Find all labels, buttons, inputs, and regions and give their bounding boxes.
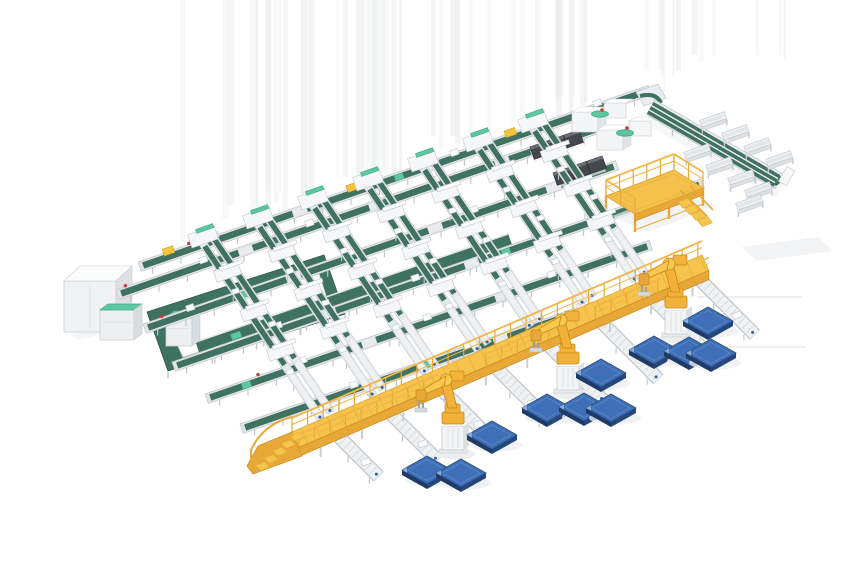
- discharge-lane-1: [335, 433, 383, 484]
- factory-3d-render: [0, 0, 860, 580]
- maintenance-platform: [606, 154, 716, 232]
- walkway-end-floor-shadow: [742, 237, 833, 261]
- pallet-2: [436, 459, 491, 492]
- control-cabinet-1: [100, 304, 142, 340]
- packing-bench-6: [722, 125, 749, 147]
- factory-scene-svg: [0, 0, 860, 580]
- packing-bench-5: [700, 112, 727, 134]
- discharge-lane-2: [387, 410, 442, 467]
- robot-pedestal: [439, 422, 469, 453]
- packing-bench-7: [744, 138, 771, 160]
